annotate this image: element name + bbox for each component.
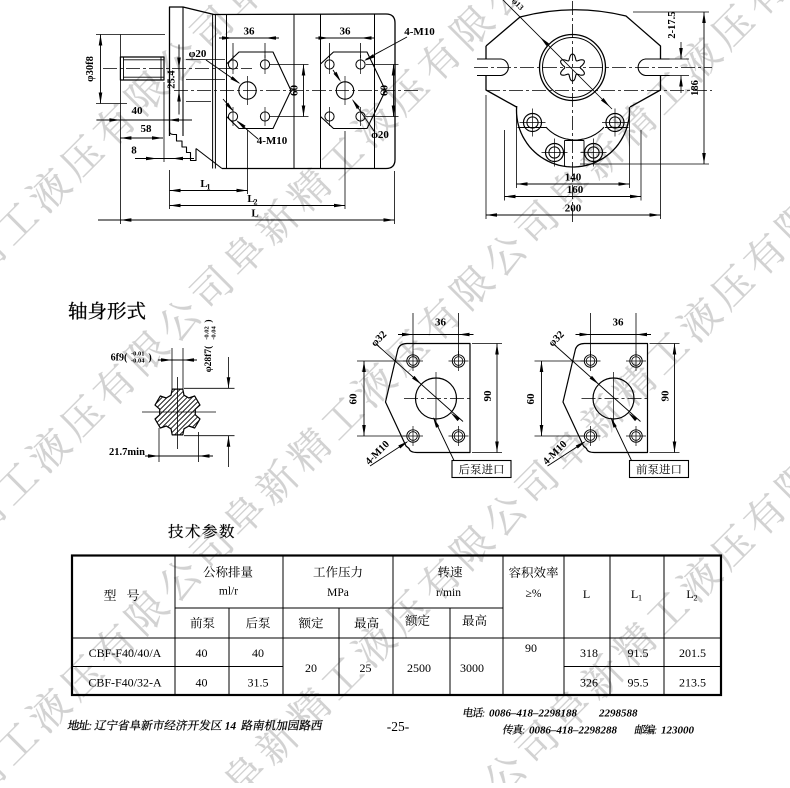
svg-text:4-M10: 4-M10: [257, 135, 288, 147]
svg-text:2: 2: [693, 593, 697, 603]
svg-text:φ28f7(: φ28f7(: [203, 346, 214, 373]
svg-text:r/min: r/min: [436, 587, 461, 599]
svg-text:20: 20: [305, 661, 317, 675]
svg-text:14: 14: [225, 721, 237, 733]
svg-text:200: 200: [565, 203, 582, 215]
svg-text:60: 60: [289, 85, 301, 97]
svg-text:-0.04: -0.04: [131, 358, 145, 365]
svg-text:90: 90: [525, 641, 537, 655]
svg-text:8: 8: [131, 145, 137, 157]
svg-text:MPa: MPa: [327, 587, 349, 599]
svg-text:40: 40: [196, 646, 208, 660]
svg-text:): ): [203, 319, 214, 322]
svg-text:≥%: ≥%: [526, 588, 542, 600]
svg-text:60: 60: [348, 393, 360, 405]
svg-text:213.5: 213.5: [679, 676, 706, 690]
svg-text:40: 40: [196, 676, 208, 690]
svg-text:φ20: φ20: [189, 48, 207, 60]
svg-text:186: 186: [690, 80, 701, 96]
svg-text:6f9(: 6f9(: [111, 353, 128, 364]
svg-text:36: 36: [435, 317, 447, 329]
svg-text:L: L: [583, 587, 590, 601]
svg-text:36: 36: [340, 26, 352, 38]
svg-text:2500: 2500: [407, 661, 431, 675]
svg-text:95.5: 95.5: [628, 676, 649, 690]
svg-text:36: 36: [613, 317, 625, 329]
svg-text:1: 1: [207, 183, 211, 192]
svg-text:60: 60: [379, 85, 391, 97]
svg-text:0086–418–2298188: 0086–418–2298188: [489, 708, 578, 720]
svg-text:21.7min: 21.7min: [109, 447, 145, 458]
svg-text:CBF-F40/32-A: CBF-F40/32-A: [88, 676, 162, 690]
svg-text:60: 60: [525, 393, 537, 405]
svg-text:318: 318: [580, 646, 598, 660]
svg-text:201.5: 201.5: [679, 646, 706, 660]
svg-text:36: 36: [244, 26, 256, 38]
svg-text:25: 25: [360, 661, 372, 675]
svg-text:): ): [148, 353, 151, 364]
svg-text:3000: 3000: [460, 661, 484, 675]
svg-text:2-17.5: 2-17.5: [667, 11, 678, 38]
svg-text:90: 90: [482, 390, 494, 402]
svg-text:ml/r: ml/r: [219, 586, 238, 598]
svg-text:1: 1: [638, 593, 642, 603]
svg-text:31.5: 31.5: [248, 676, 269, 690]
svg-text:φ30f8: φ30f8: [85, 56, 96, 82]
svg-text:160: 160: [567, 184, 584, 196]
svg-text:-0.02: -0.02: [204, 326, 211, 340]
svg-text:40: 40: [252, 646, 264, 660]
svg-text:L: L: [251, 208, 258, 220]
svg-text:326: 326: [580, 676, 598, 690]
svg-text:-0.01: -0.01: [131, 351, 145, 358]
svg-text:CBF-F40/40/A: CBF-F40/40/A: [89, 646, 162, 660]
svg-text:-25-: -25-: [387, 719, 410, 734]
svg-text:140: 140: [565, 172, 582, 184]
svg-text:58: 58: [141, 123, 153, 135]
svg-text:-0.04: -0.04: [211, 325, 218, 339]
svg-text:25.4: 25.4: [167, 70, 178, 89]
svg-text:90: 90: [660, 390, 672, 402]
svg-text:2298588: 2298588: [598, 708, 638, 720]
svg-text:4-M10: 4-M10: [404, 26, 435, 38]
svg-text:91.5: 91.5: [628, 646, 649, 660]
svg-text:40: 40: [132, 105, 144, 117]
svg-text:2: 2: [254, 198, 258, 207]
svg-text:0086–418–2298288: 0086–418–2298288: [529, 725, 618, 737]
svg-text:123000: 123000: [661, 725, 695, 737]
